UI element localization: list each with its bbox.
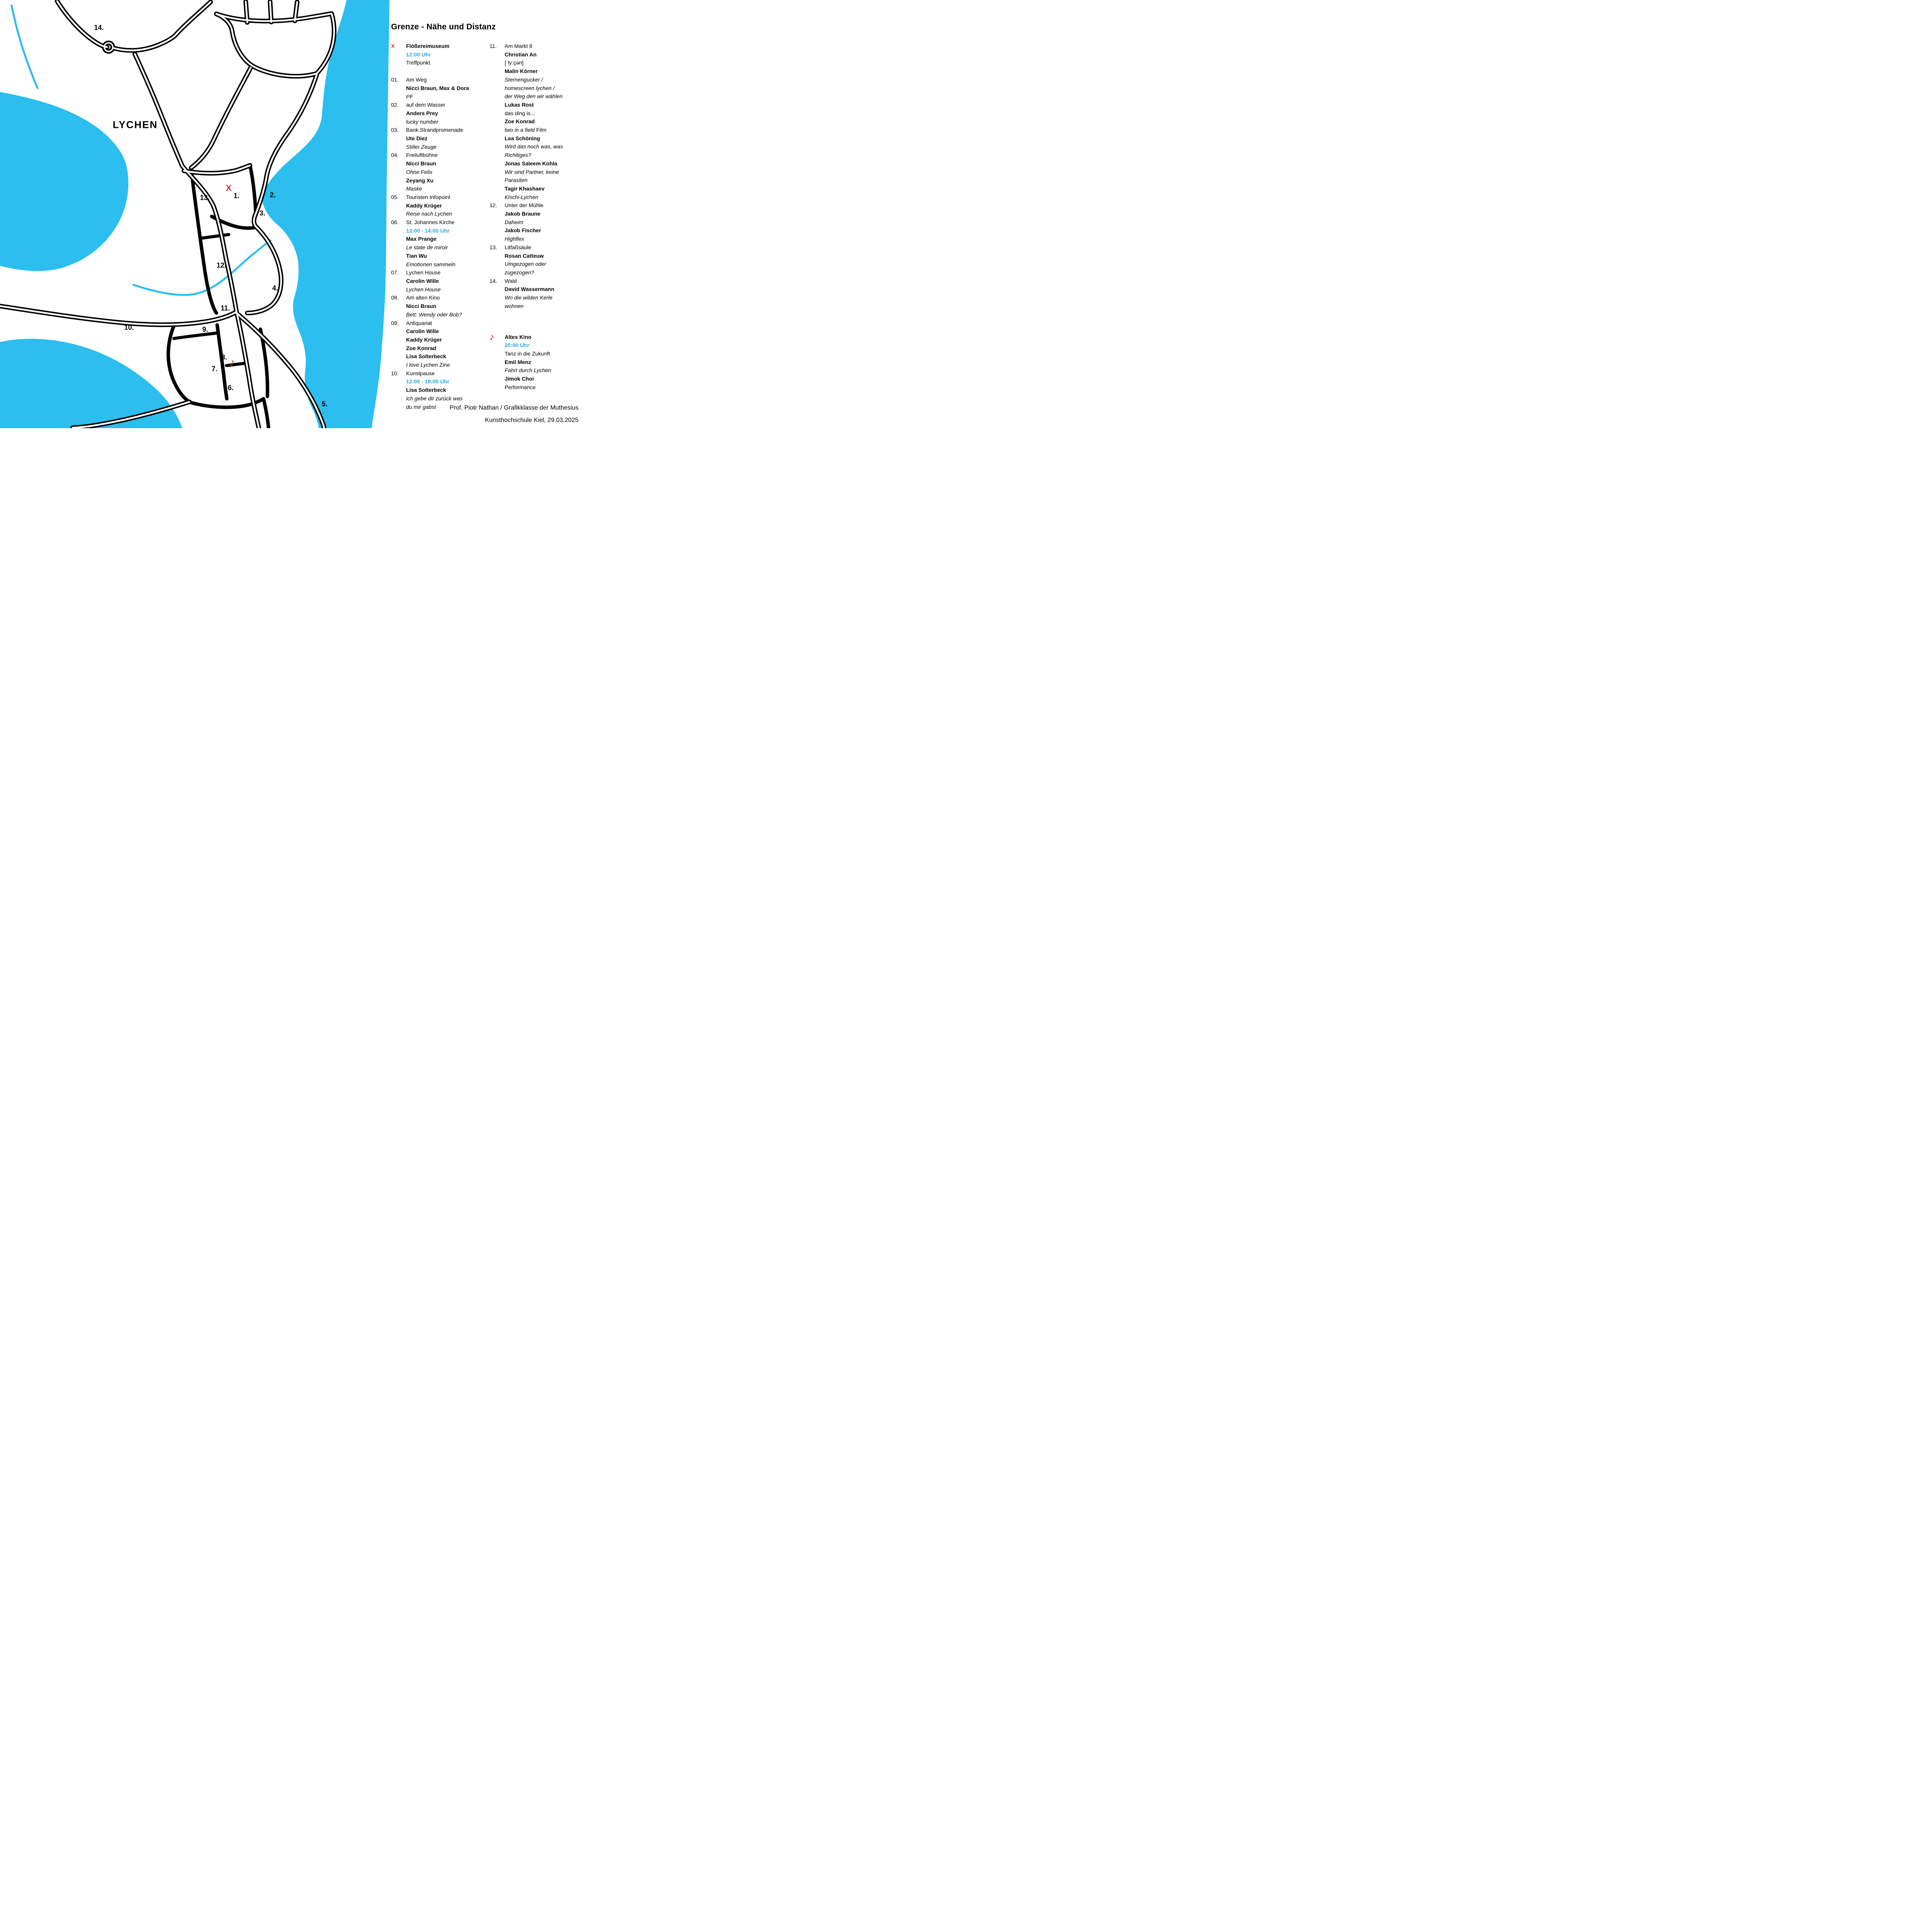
entry-number: 14. bbox=[490, 277, 497, 286]
entry-place: St. Johannes Kirche bbox=[406, 218, 488, 227]
program-line: wohnen bbox=[505, 302, 587, 311]
entry-place: Touristen Infopoint bbox=[406, 193, 488, 202]
map-label-9: 9. bbox=[202, 326, 208, 334]
footer-line-1: Prof. Piotr Nathan / Grafikklasse der Mu… bbox=[450, 402, 578, 414]
program-line: zugezogen? bbox=[505, 269, 587, 277]
program-line: Christian An bbox=[505, 51, 587, 59]
program-line: Kaddy Krüger bbox=[406, 202, 488, 210]
program-entry: 06.St. Johannes Kirche12:00 - 14:00 UhrM… bbox=[391, 218, 488, 269]
entry-place: Altes Kino bbox=[505, 333, 587, 342]
entry-number: 05. bbox=[391, 193, 398, 202]
entry-place: Unter der Mühle bbox=[505, 201, 587, 210]
entry-place: Antiquariat bbox=[406, 319, 488, 328]
program-line: Le state de miroir bbox=[406, 243, 488, 252]
street-grid-exit bbox=[264, 399, 269, 428]
program-line: Daheim bbox=[505, 218, 587, 227]
street-grid-cross-w bbox=[174, 333, 216, 338]
program-line: Wir sind Partner, keine bbox=[505, 168, 587, 177]
program-line: 12:00 - 14:00 Uhr bbox=[406, 227, 488, 235]
program-entry: 14.WaldDavid WassermannWo die wilden Ker… bbox=[490, 277, 587, 311]
program-line: Jimok Choi bbox=[505, 375, 587, 383]
entry-number: 04. bbox=[391, 151, 398, 160]
entry-place: Bank Strandpromenade bbox=[406, 126, 488, 134]
entry-number: 10. bbox=[391, 369, 398, 378]
program-line: Kischi-Lychen bbox=[505, 193, 587, 202]
map-label-14: 14. bbox=[94, 24, 104, 32]
entry-place: Kunstpause bbox=[406, 369, 488, 378]
program-entry: 08.Am alten KinoNicci BraunBett: Wendy o… bbox=[391, 294, 488, 319]
city-label: LYCHEN bbox=[113, 119, 158, 131]
map-label-7: 7. bbox=[211, 365, 217, 373]
note-legend-symbol: ♪ bbox=[490, 333, 495, 341]
program-entry: 04.FreiluftbühneNicci BraunOhne FelixZey… bbox=[391, 151, 488, 193]
entry-number: 03. bbox=[391, 126, 398, 134]
program-line: homescreen lychen / bbox=[505, 84, 587, 93]
entry-number: 09. bbox=[391, 319, 398, 328]
entry-number: 01. bbox=[391, 76, 398, 84]
program-line: Emotionen sammeln bbox=[406, 260, 488, 269]
program-line: Nicci Braun bbox=[406, 160, 488, 168]
water-bottomleft-lake bbox=[0, 339, 182, 428]
program-line: Lychen House bbox=[406, 286, 488, 294]
road-topleft-diagonal bbox=[57, 1, 211, 50]
program-line: Tanz in die Zukunft bbox=[505, 350, 587, 358]
entry-number: 13. bbox=[490, 243, 497, 252]
roads-single bbox=[168, 165, 269, 428]
program-line: Jakob Braune bbox=[505, 210, 587, 218]
program-entry: XFlößereimuseum12:00 UhrTreffpunkt bbox=[391, 42, 488, 67]
map-label-13: 13. bbox=[200, 194, 209, 202]
program-line: Max Prange bbox=[406, 235, 488, 243]
map-label-3: 3. bbox=[259, 209, 265, 218]
program-line: der Weg den wir wählen bbox=[505, 92, 587, 101]
program-line: Lukas Rost bbox=[505, 101, 587, 109]
program-line: Jakob Fischer bbox=[505, 226, 587, 235]
program-entry: 09.AntiquariatCarolin WilleKaddy KrügerZ… bbox=[391, 319, 488, 369]
program-line: Lisa Solterbeck bbox=[406, 386, 488, 395]
street-corridor-cross bbox=[202, 235, 229, 238]
program-entry: 12.Unter der MühleJakob BrauneDaheimJako… bbox=[490, 201, 587, 243]
map-label-2: 2. bbox=[270, 191, 276, 199]
program-line: Anders Prey bbox=[406, 109, 488, 118]
entry-place: Freiluftbühne bbox=[406, 151, 488, 160]
entry-place: Wald bbox=[505, 277, 587, 286]
program-line: Lea Schöning bbox=[505, 134, 587, 143]
program-line: Ohne Felix bbox=[406, 168, 488, 177]
program-line: Zoe Konrad bbox=[505, 117, 587, 126]
program-line: Ute Diez bbox=[406, 134, 488, 143]
program-entry: 03.Bank StrandpromenadeUte DiezStiller Z… bbox=[391, 126, 488, 151]
program-line: Bett: Wendy oder Bob? bbox=[406, 311, 488, 319]
program-line: I love Lychen Zine bbox=[406, 361, 488, 369]
program-line: Sternengucker / bbox=[505, 76, 587, 84]
program-line: das ding is... bbox=[505, 109, 587, 118]
map-label-5: 5. bbox=[321, 400, 327, 408]
entry-number: 11. bbox=[490, 42, 497, 51]
program-line: [ˈlyːçən] bbox=[505, 59, 587, 67]
entry-place: Am Weg bbox=[406, 76, 488, 84]
program-entry: 02.auf dem WasserAnders Preylucky number bbox=[391, 101, 488, 126]
program-line: Emil Menz bbox=[505, 358, 587, 367]
footer: Prof. Piotr Nathan / Grafikklasse der Mu… bbox=[450, 402, 578, 427]
program-line: Treffpunkt bbox=[406, 59, 488, 67]
program-line: Highflex bbox=[505, 235, 587, 243]
road-top-cluster bbox=[216, 14, 334, 76]
program-entry: 01.Am WegNicci Braun, Max & DoraPF bbox=[391, 76, 488, 101]
map-label-6: 6. bbox=[228, 384, 233, 392]
program-line: Carolin Wille bbox=[406, 327, 488, 336]
program-line: PF bbox=[406, 93, 488, 101]
program-line: Carolin Wille bbox=[406, 277, 488, 286]
program-line: Tagir Khashaev bbox=[505, 185, 587, 193]
entry-number: 08. bbox=[391, 294, 398, 302]
program-column-1: XFlößereimuseum12:00 UhrTreffpunkt01.Am … bbox=[391, 42, 488, 411]
x-marker: X bbox=[226, 183, 232, 193]
program-line: David Wassermann bbox=[505, 285, 587, 294]
entry-number: 07. bbox=[391, 269, 398, 277]
program-line: Fahrt durch Lychen bbox=[505, 366, 587, 375]
program-entry: 11.Am Markt 8Christian An[ˈlyːçən]Malin … bbox=[490, 42, 587, 201]
program-line: Maske bbox=[406, 185, 488, 193]
stream-topleft bbox=[12, 5, 37, 88]
program-line: Wird das noch was, was bbox=[505, 143, 587, 151]
map-svg bbox=[0, 0, 390, 428]
entry-place: Litfaßsäule bbox=[505, 243, 587, 252]
footer-line-2: Kunsthochschule Kiel, 29.03.2025 bbox=[450, 414, 578, 427]
program-line: Umgezogen oder bbox=[505, 260, 587, 269]
program-line: Lisa Solterbeck bbox=[406, 352, 488, 361]
program-line: Performance bbox=[505, 383, 587, 392]
x-legend-symbol: X bbox=[391, 42, 395, 51]
program-line: Richitiges? bbox=[505, 151, 587, 160]
water-left-lake bbox=[0, 92, 128, 271]
program-line: Tian Wu bbox=[406, 252, 488, 260]
page-title: Grenze - Nähe und Distanz bbox=[391, 22, 496, 32]
entry-place: Lychen House bbox=[406, 269, 488, 277]
program-line: Zeyang Xu bbox=[406, 177, 488, 185]
program-line: 12:00 Uhr bbox=[406, 51, 488, 59]
program-entry: ♪Altes Kino20:00 UhrTanz in die ZukunftE… bbox=[490, 333, 587, 392]
entry-number: 12. bbox=[490, 201, 497, 210]
program-line: Nicci Braun bbox=[406, 302, 488, 311]
program-line: Stiller Zeuge bbox=[406, 143, 488, 151]
map-label-11: 11. bbox=[221, 304, 230, 313]
program-entry: 13.LitfaßsäuleRosan CatteuwUmgezogen ode… bbox=[490, 243, 587, 277]
map-label-10: 10. bbox=[124, 324, 134, 332]
entry-place: Am alten Kino bbox=[406, 294, 488, 302]
poster-page: 14.LYCHENX13.1.2.3.12.4.11.10.9.8.♪7.6.5… bbox=[0, 0, 606, 428]
music-note-marker: ♪ bbox=[230, 356, 235, 369]
program-entry: 07.Lychen HouseCarolin WilleLychen House bbox=[391, 269, 488, 294]
program-line: 20:00 Uhr bbox=[505, 341, 587, 350]
program-line: Wo die wilden Kerle bbox=[505, 294, 587, 302]
map-label-4: 4. bbox=[272, 284, 278, 293]
program-line: Parasiten bbox=[505, 176, 587, 185]
map-label-8: 8. bbox=[221, 354, 227, 362]
program-line: Kaddy Krüger bbox=[406, 336, 488, 344]
street-grid-v1 bbox=[217, 325, 227, 399]
lychen-map: 14.LYCHENX13.1.2.3.12.4.11.10.9.8.♪7.6.5… bbox=[0, 0, 390, 428]
water-layer bbox=[0, 0, 389, 428]
program-line: Rosan Catteuw bbox=[505, 252, 587, 260]
program-line: Zoe Konrad bbox=[406, 344, 488, 353]
program-line: Nicci Braun, Max & Dora bbox=[406, 84, 488, 93]
program-line: Malin Körner bbox=[505, 67, 587, 76]
map-label-12: 12. bbox=[216, 262, 226, 270]
entry-number: 02. bbox=[391, 101, 398, 109]
entry-number: 06. bbox=[391, 218, 398, 227]
street-east-block1 bbox=[250, 165, 256, 216]
program-column-2: 11.Am Markt 8Christian An[ˈlyːçən]Malin … bbox=[490, 42, 587, 391]
entry-place: Flößereimuseum bbox=[406, 42, 488, 51]
program-line: Jonas Saleem Kohla bbox=[505, 160, 587, 168]
program-entry: 05.Touristen InfopointKaddy KrügerReise … bbox=[391, 193, 488, 218]
entry-place: Am Markt 8 bbox=[505, 42, 587, 51]
program-line: lucky number bbox=[406, 118, 488, 126]
program-line: two in a field Film bbox=[505, 126, 587, 134]
program-line: Reise nach Lychen bbox=[406, 210, 488, 218]
road-main-street bbox=[135, 54, 259, 428]
entry-place: auf dem Wasser bbox=[406, 101, 488, 109]
map-label-1: 1. bbox=[233, 192, 239, 200]
program-line: 12:00 - 18:00 Uhr bbox=[406, 378, 488, 386]
